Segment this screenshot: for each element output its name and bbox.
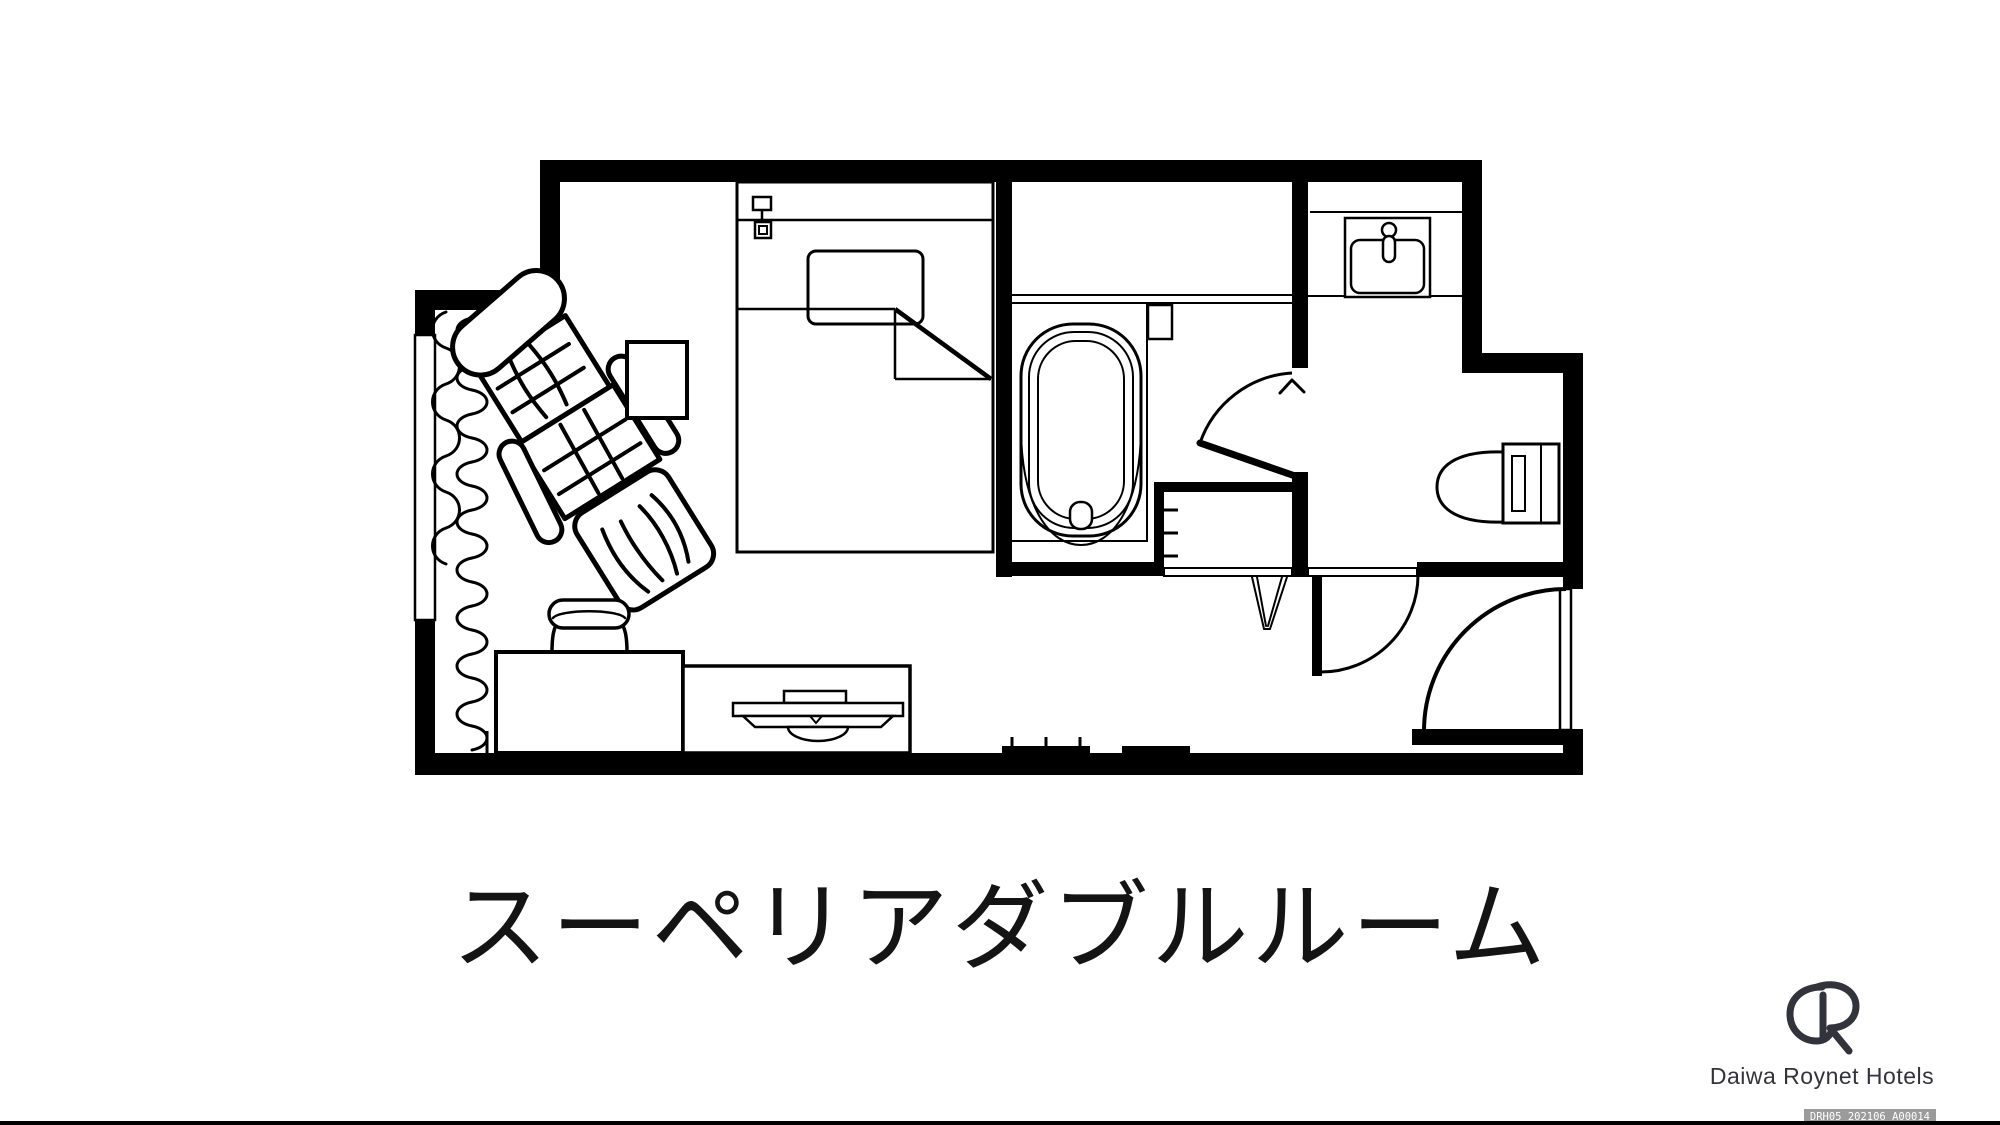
wall-bottom: [415, 753, 1583, 775]
page-title: スーペリアダブルルーム: [0, 848, 2000, 989]
closet: [1164, 510, 1292, 629]
daiwa-roynet-hotels-monogram-icon: [1776, 975, 1868, 1059]
bathroom-door: [1200, 373, 1304, 477]
wall-bed-bath: [996, 182, 1012, 577]
wall-entrance-corner: [1563, 729, 1583, 775]
bath-counter-box: [1148, 305, 1172, 339]
closet-front-rail: [1164, 568, 1292, 576]
bathtub: [1021, 324, 1141, 545]
branding: Daiwa Roynet Hotels DRH05_202106_A00014: [1692, 975, 1952, 1125]
washbasin: [1345, 218, 1430, 297]
hanger-icon: [1252, 577, 1287, 629]
wall-left-lower: [415, 620, 435, 775]
wall-top: [540, 160, 1482, 182]
stool: [549, 600, 629, 652]
washroom-door-leaf: [1312, 574, 1322, 676]
double-bed: [737, 182, 993, 552]
entrance-door-leaf: [1560, 589, 1571, 730]
desk: [496, 652, 683, 753]
floorplan-page: スーペリアダブルルーム Daiwa Roynet Hotels DRH05_20…: [0, 0, 2000, 1125]
bath-faucet: [1070, 502, 1092, 529]
bed-frame: [737, 182, 993, 552]
wall-bath-right-upper: [1292, 182, 1308, 368]
wall-closet-top: [1154, 482, 1297, 492]
washroom-door: [1308, 568, 1418, 672]
wall-entrance-threshold: [1412, 729, 1572, 745]
closet-shelf-ticks: [1164, 510, 1178, 556]
brand-name: Daiwa Roynet Hotels: [1692, 1063, 1952, 1090]
toilet: [1437, 444, 1559, 523]
vanity-washroom: [1308, 212, 1559, 672]
wall-right-upper: [1462, 160, 1482, 355]
wall-right: [1563, 353, 1583, 589]
window-curtains: [433, 312, 488, 756]
side-table: [627, 342, 687, 418]
pillow: [808, 251, 923, 324]
wall-bath-bottom: [996, 562, 1154, 576]
wall-closet-left: [1154, 482, 1164, 576]
bottom-border-line: [0, 1121, 2000, 1125]
wall-toilet-bottom: [1417, 562, 1583, 577]
entrance-door-swing: [1424, 589, 1566, 731]
wall-bath-right-lower: [1292, 472, 1308, 577]
